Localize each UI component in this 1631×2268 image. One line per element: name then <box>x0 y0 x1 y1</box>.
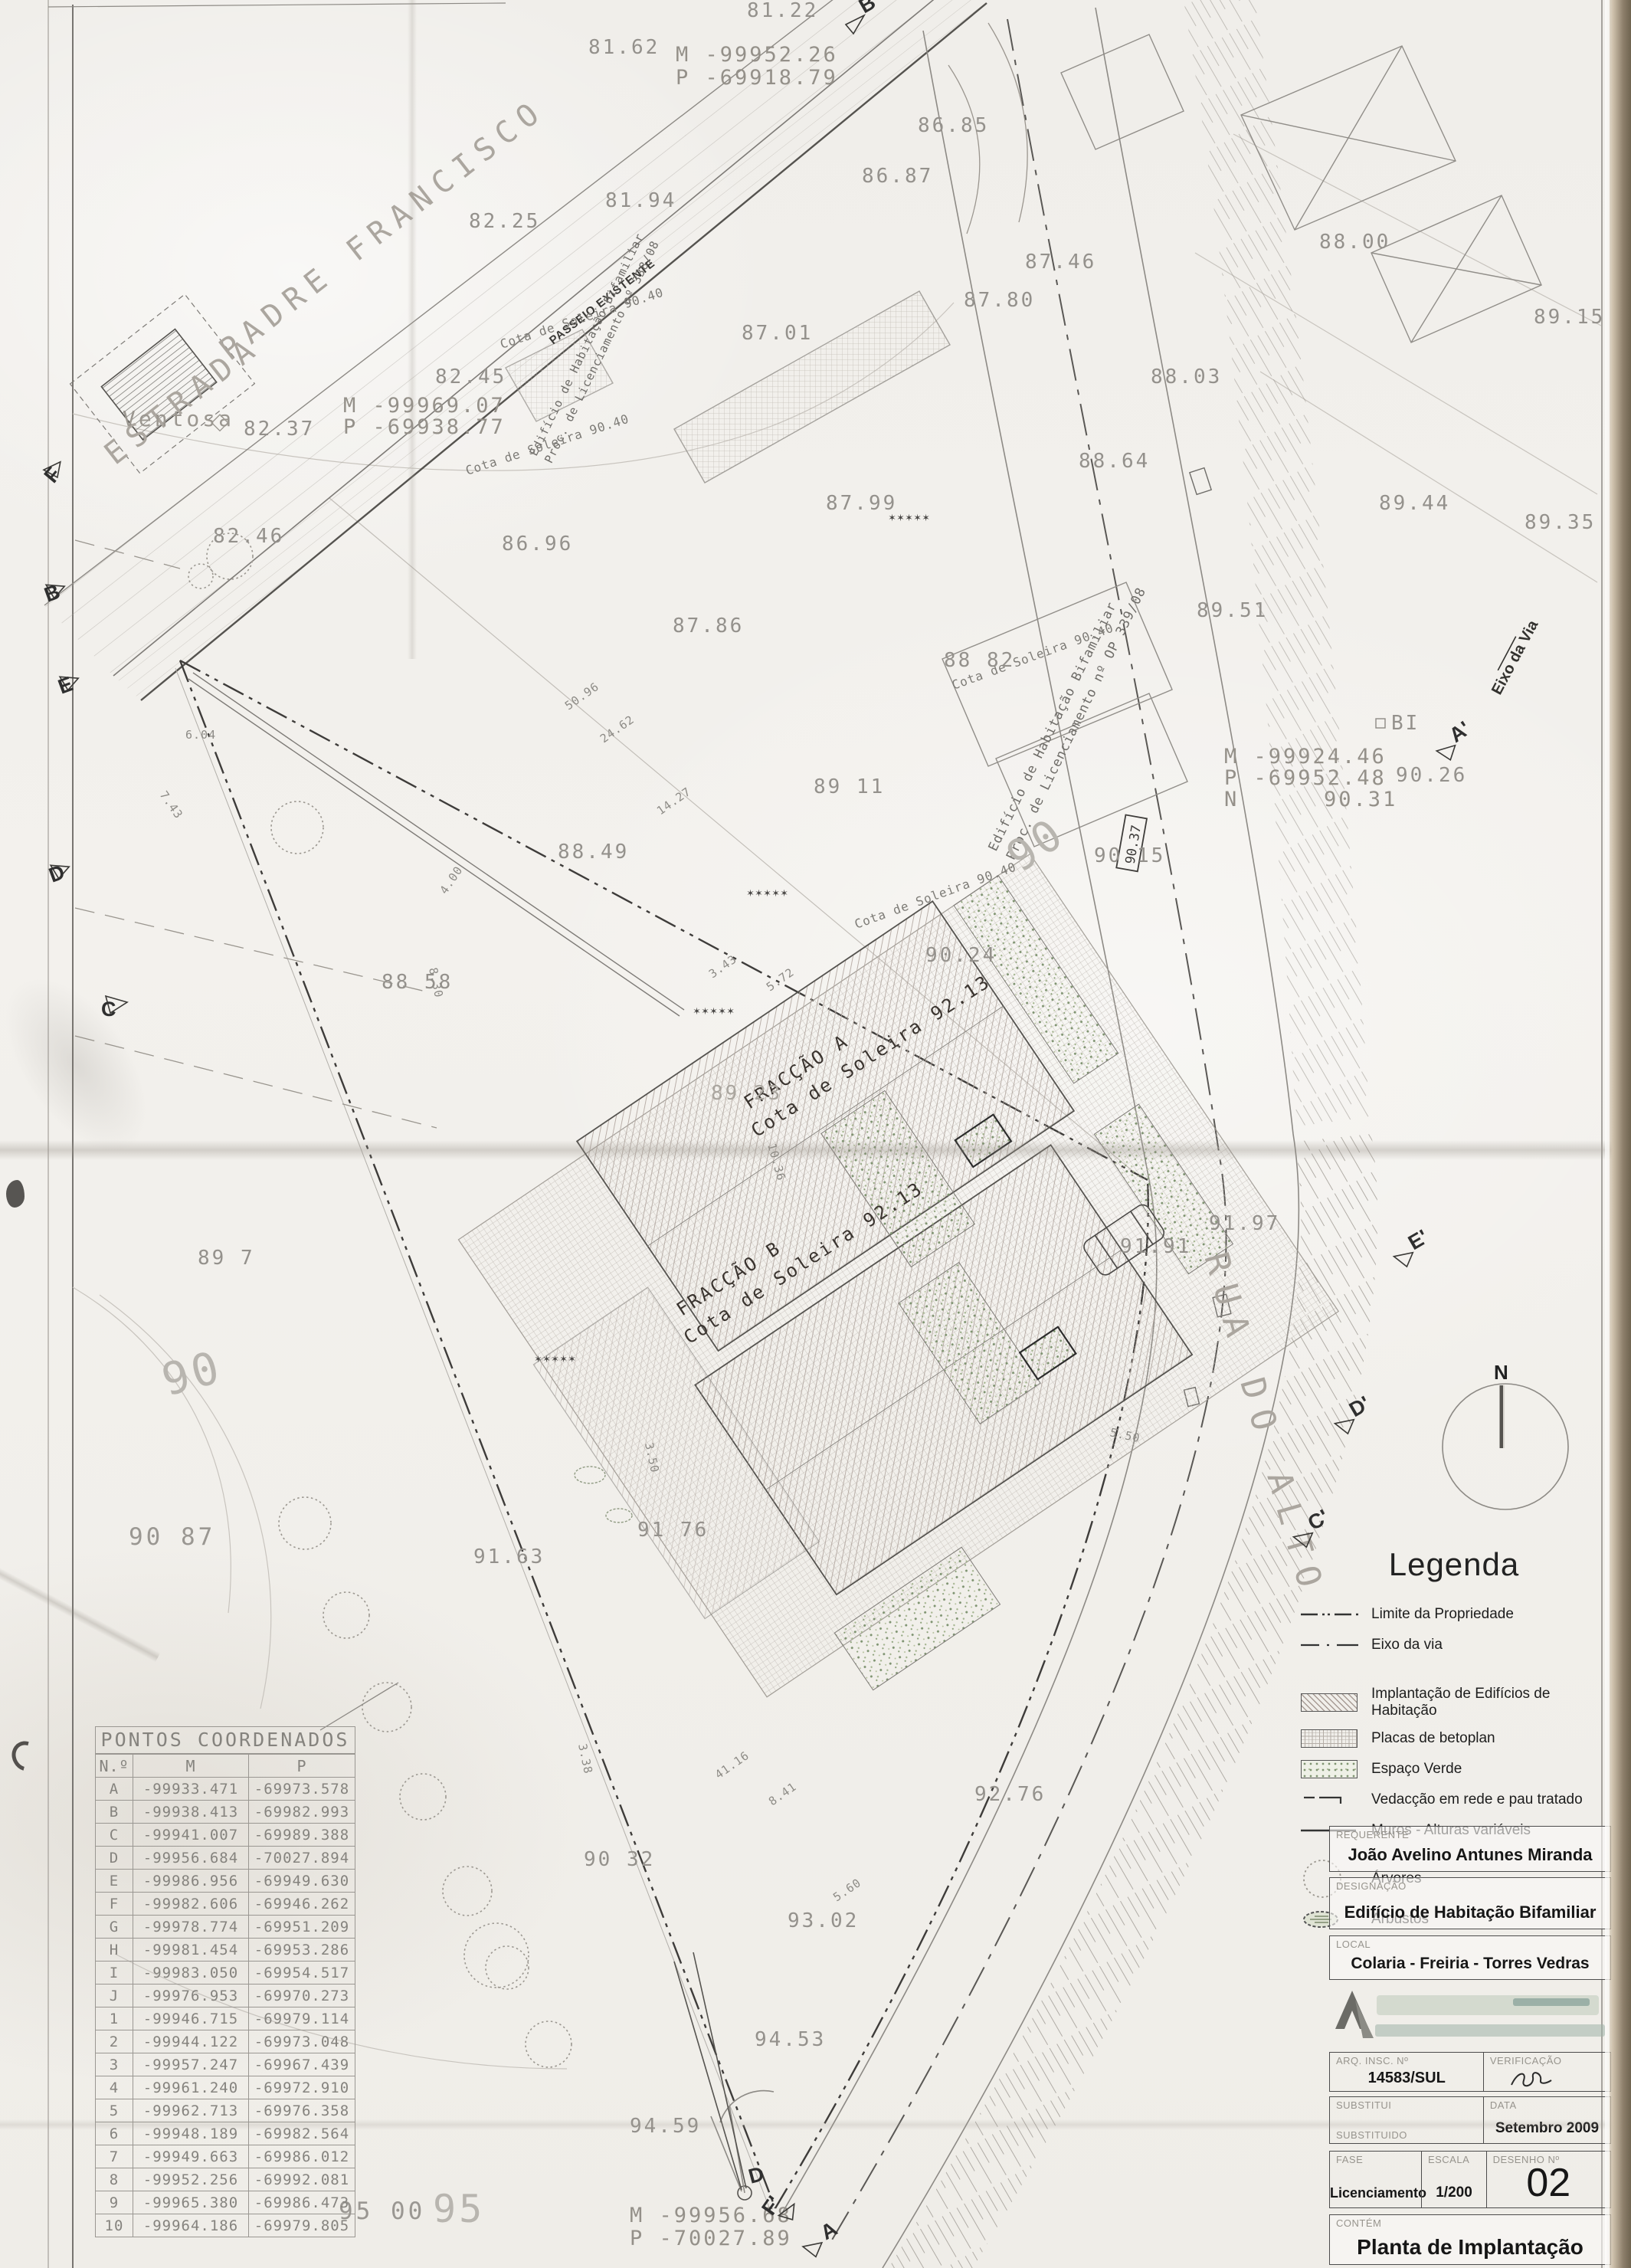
field-verificacao: VERIFICAÇÃO <box>1483 2052 1611 2092</box>
legend-item: Placas de betoplan <box>1301 1727 1607 1750</box>
svg-text:89 11: 89 11 <box>814 775 885 798</box>
point-id: 3 <box>96 2053 133 2076</box>
svg-text:4.00: 4.00 <box>437 864 465 896</box>
title-block: REQUERENTE João Avelino Antunes Miranda … <box>1329 1826 1611 2265</box>
svg-text:91.91: 91.91 <box>1120 1235 1191 1258</box>
svg-text:87.01: 87.01 <box>742 322 813 345</box>
scanned-site-plan-sheet: ✶✶✶✶✶ ✶✶✶✶✶ ✶✶✶✶✶ ✶✶✶✶✶ ESTRADA PADRE FR… <box>0 0 1631 2268</box>
point-p: -69992.081 <box>249 2168 355 2191</box>
point-p: -69949.630 <box>249 1870 355 1893</box>
point-id: C <box>96 1824 133 1847</box>
fold-crease-vertical <box>408 0 417 659</box>
svg-text:D: D <box>46 860 68 887</box>
point-m: -99948.189 <box>133 2122 249 2145</box>
point-m: -99981.454 <box>133 1939 249 1962</box>
svg-text:BI: BI <box>1391 712 1420 735</box>
road-axis-line-symbol <box>1301 1634 1361 1657</box>
svg-text:E': E' <box>1404 1225 1432 1254</box>
point-m: -99978.774 <box>133 1916 249 1939</box>
svg-text:✶✶✶✶✶: ✶✶✶✶✶ <box>747 886 789 900</box>
table-row: 1 -99946.715 -69979.114 <box>96 2007 355 2030</box>
svg-text:B: B <box>41 580 64 607</box>
svg-text:89.35: 89.35 <box>1525 511 1596 534</box>
table-row: B -99938.413 -69982.993 <box>96 1801 355 1824</box>
table-row: 10 -99964.186 -69979.805 <box>96 2214 355 2237</box>
point-m: -99961.240 <box>133 2076 249 2099</box>
point-p: -69954.517 <box>249 1962 355 1984</box>
col-header-p: P <box>249 1755 355 1778</box>
svg-text:✶✶✶✶✶: ✶✶✶✶✶ <box>693 1004 735 1018</box>
point-p: -69979.114 <box>249 2007 355 2030</box>
point-m: -99983.050 <box>133 1962 249 1984</box>
point-id: 4 <box>96 2076 133 2099</box>
svg-text:81.22: 81.22 <box>747 0 818 22</box>
point-id: 10 <box>96 2214 133 2237</box>
svg-text:3.38: 3.38 <box>575 1742 595 1775</box>
place-label-ventosa: Ventosa <box>123 406 234 431</box>
point-p: -69986.012 <box>249 2145 355 2168</box>
field-fase: FASE Licenciamento <box>1329 2151 1422 2208</box>
field-data: DATA Setembro 2009 <box>1483 2096 1611 2144</box>
table-row: 9 -99965.380 -69986.473 <box>96 2191 355 2214</box>
svg-text:86.96: 86.96 <box>502 533 573 556</box>
point-p: -69953.286 <box>249 1939 355 1962</box>
point-id: 9 <box>96 2191 133 2214</box>
svg-text:86.85: 86.85 <box>918 114 989 137</box>
svg-text:81.62: 81.62 <box>588 36 660 59</box>
svg-text:14.27: 14.27 <box>654 785 693 818</box>
svg-text:Eixo da Via: Eixo da Via <box>1489 617 1542 697</box>
point-id: D <box>96 1847 133 1870</box>
point-m: -99949.663 <box>133 2145 249 2168</box>
point-p: -69946.262 <box>249 1893 355 1916</box>
diagonal-hatch-swatch <box>1301 1691 1361 1714</box>
svg-text:92.76: 92.76 <box>974 1783 1046 1806</box>
table-row: A -99933.471 -69973.578 <box>96 1778 355 1801</box>
svg-text:50.96: 50.96 <box>562 680 601 713</box>
svg-text:M -99924.46: M -99924.46 <box>1224 745 1387 769</box>
point-p: -69986.473 <box>249 2191 355 2214</box>
signature-squiggle <box>1507 2068 1561 2091</box>
svg-text:N: N <box>1224 788 1239 811</box>
point-m: -99962.713 <box>133 2099 249 2122</box>
svg-text:8.41: 8.41 <box>766 1780 799 1809</box>
point-m: -99933.471 <box>133 1778 249 1801</box>
point-id: J <box>96 1984 133 2007</box>
svg-text:D: D <box>746 2162 767 2188</box>
svg-text:89 7: 89 7 <box>198 1247 255 1270</box>
point-id: 2 <box>96 2030 133 2053</box>
svg-text:90.24: 90.24 <box>925 944 997 967</box>
svg-text:P -70027.89: P -70027.89 <box>630 2227 792 2250</box>
contour-label-90: 90 <box>156 1341 228 1407</box>
field-requerente: REQUERENTE João Avelino Antunes Miranda <box>1329 1826 1611 1872</box>
svg-text:M -99969.07: M -99969.07 <box>343 394 506 418</box>
svg-text:A: A <box>817 2217 841 2244</box>
point-p: -69979.805 <box>249 2214 355 2237</box>
svg-text:82.45: 82.45 <box>435 365 506 388</box>
svg-text:91.97: 91.97 <box>1209 1212 1280 1235</box>
point-m: -99982.606 <box>133 1893 249 1916</box>
legend-item: Espaço Verde <box>1301 1758 1607 1781</box>
road-axis-label: Eixo da Via <box>1488 617 1542 697</box>
svg-text:90 15: 90 15 <box>1094 844 1165 867</box>
svg-text:87.80: 87.80 <box>964 289 1035 312</box>
svg-text:88.49: 88.49 <box>558 841 629 864</box>
svg-text:P -69952.48: P -69952.48 <box>1224 766 1387 790</box>
table-row: 2 -99944.122 -69973.048 <box>96 2030 355 2053</box>
point-m: -99957.247 <box>133 2053 249 2076</box>
contour-label-95: 95 <box>433 2187 485 2231</box>
point-p: -69989.388 <box>249 1824 355 1847</box>
coordinates-table: PONTOS COORDENADOS N.º M P A -99933.471 … <box>95 1726 355 2237</box>
legend-title: Legenda <box>1301 1546 1607 1583</box>
table-row: 5 -99962.713 -69976.358 <box>96 2099 355 2122</box>
svg-text:41.16: 41.16 <box>712 1749 752 1782</box>
point-id: H <box>96 1939 133 1962</box>
coord-note-west: M -99969.07 P -69938.77 <box>343 394 506 439</box>
svg-text:✶✶✶✶✶: ✶✶✶✶✶ <box>535 1352 577 1365</box>
svg-text:5.60: 5.60 <box>830 1876 863 1904</box>
svg-text:91.63: 91.63 <box>473 1545 545 1568</box>
svg-text:82.37: 82.37 <box>244 418 315 441</box>
svg-text:90 87: 90 87 <box>129 1523 215 1551</box>
svg-text:89 23: 89 23 <box>711 1082 782 1105</box>
table-row: E -99986.956 -69949.630 <box>96 1870 355 1893</box>
svg-text:A': A' <box>1445 716 1474 746</box>
svg-text:P -69918.79: P -69918.79 <box>676 66 838 90</box>
field-arq-insc: ARQ. INSC. Nº 14583/SUL <box>1329 2052 1484 2092</box>
point-id: 6 <box>96 2122 133 2145</box>
field-local: LOCAL Colaria - Freiria - Torres Vedras <box>1329 1935 1611 1980</box>
point-p: -69982.564 <box>249 2122 355 2145</box>
table-row: 6 -99948.189 -69982.564 <box>96 2122 355 2145</box>
table-row: D -99956.684 -70027.894 <box>96 1847 355 1870</box>
field-escala: ESCALA 1/200 <box>1421 2151 1487 2208</box>
point-id: E <box>96 1870 133 1893</box>
svg-text:94.59: 94.59 <box>630 2115 701 2138</box>
point-p: -69972.910 <box>249 2076 355 2099</box>
point-p: -69976.358 <box>249 2099 355 2122</box>
property-line-symbol <box>1301 1603 1361 1626</box>
point-m: -99952.256 <box>133 2168 249 2191</box>
grid-hatch-swatch <box>1301 1727 1361 1750</box>
svg-text:87.46: 87.46 <box>1025 251 1096 274</box>
green-stipple-swatch <box>1301 1758 1361 1781</box>
point-m: -99965.380 <box>133 2191 249 2214</box>
point-p: -69982.993 <box>249 1801 355 1824</box>
ink-stain <box>6 1180 25 1208</box>
point-id: B <box>96 1801 133 1824</box>
table-row: F -99982.606 -69946.262 <box>96 1893 355 1916</box>
table-row: G -99978.774 -69951.209 <box>96 1916 355 1939</box>
point-p: -69970.273 <box>249 1984 355 2007</box>
svg-text:87.86: 87.86 <box>673 615 744 637</box>
svg-text:88.03: 88.03 <box>1151 365 1222 388</box>
table-row: I -99983.050 -69954.517 <box>96 1962 355 1984</box>
field-designacao: DESIGNAÇÃO Edifício de Habitação Bifamil… <box>1329 1877 1611 1929</box>
point-p: -69973.048 <box>249 2030 355 2053</box>
table-row: 7 -99949.663 -69986.012 <box>96 2145 355 2168</box>
svg-text:88 82: 88 82 <box>944 649 1015 672</box>
coordinates-table-title: PONTOS COORDENADOS <box>95 1726 355 1754</box>
coord-note-top: M -99952.26 P -69918.79 <box>676 43 838 90</box>
svg-text:89.51: 89.51 <box>1197 599 1268 622</box>
point-id: A <box>96 1778 133 1801</box>
svg-text:90.31: 90.31 <box>1324 788 1397 811</box>
col-header-m: M <box>133 1755 249 1778</box>
svg-text:88.64: 88.64 <box>1079 450 1150 473</box>
point-m: -99964.186 <box>133 2214 249 2237</box>
svg-text:M -99952.26: M -99952.26 <box>676 43 838 67</box>
point-id: 7 <box>96 2145 133 2168</box>
col-header-number: N.º <box>96 1755 133 1778</box>
svg-text:7.43: 7.43 <box>157 788 186 821</box>
svg-text:86.87: 86.87 <box>862 165 933 188</box>
point-p: -69951.209 <box>249 1916 355 1939</box>
table-leader-line <box>320 1683 398 1730</box>
legend-item: Implantação de Edifícios de Habitação <box>1301 1686 1607 1719</box>
point-m: -99986.956 <box>133 1870 249 1893</box>
table-row: C -99941.007 -69989.388 <box>96 1824 355 1847</box>
svg-text:89.15: 89.15 <box>1534 306 1605 329</box>
north-label: N <box>1494 1361 1508 1384</box>
point-p: -69973.578 <box>249 1778 355 1801</box>
svg-text:88.00: 88.00 <box>1319 231 1390 254</box>
coordinates-table-body: A -99933.471 -69973.578 B -99938.413 -69… <box>96 1778 355 2237</box>
field-desenho-numero: DESENHO Nº 02 <box>1486 2151 1611 2208</box>
svg-text:82.46: 82.46 <box>213 525 284 548</box>
stamp-logo <box>1329 1984 1611 2044</box>
legend-item: Limite da Propriedade <box>1301 1603 1607 1626</box>
point-id: 8 <box>96 2168 133 2191</box>
point-m: -99976.953 <box>133 1984 249 2007</box>
north-compass: N <box>1443 1361 1568 1509</box>
table-row: H -99981.454 -69953.286 <box>96 1939 355 1962</box>
svg-text:90.26: 90.26 <box>1396 764 1467 787</box>
point-id: I <box>96 1962 133 1984</box>
table-row: J -99976.953 -69970.273 <box>96 1984 355 2007</box>
svg-text:6.04: 6.04 <box>185 728 216 742</box>
svg-text:24.62: 24.62 <box>598 713 637 746</box>
utility-bi-label: BI <box>1376 712 1420 735</box>
field-contem: CONTÉM Planta de Implantação <box>1329 2214 1611 2265</box>
table-row: 8 -99952.256 -69992.081 <box>96 2168 355 2191</box>
point-m: -99946.715 <box>133 2007 249 2030</box>
svg-text:91 76: 91 76 <box>637 1519 709 1542</box>
fence-symbol <box>1301 1788 1361 1811</box>
svg-text:89.44: 89.44 <box>1379 492 1450 515</box>
point-p: -69967.439 <box>249 2053 355 2076</box>
table-row: 4 -99961.240 -69972.910 <box>96 2076 355 2099</box>
table-row: 3 -99957.247 -69967.439 <box>96 2053 355 2076</box>
svg-text:87.99: 87.99 <box>826 492 897 515</box>
coordinates-table-header-row: N.º M P <box>96 1755 355 1778</box>
scan-edge-highlight <box>1605 0 1610 2268</box>
point-m: -99944.122 <box>133 2030 249 2053</box>
point-id: F <box>96 1893 133 1916</box>
point-m: -99941.007 <box>133 1824 249 1847</box>
legend-item: Eixo da via <box>1301 1634 1607 1657</box>
svg-text:93.02: 93.02 <box>788 1909 859 1932</box>
architect-stamp <box>1329 1984 1611 2044</box>
svg-text:81.94: 81.94 <box>605 189 676 212</box>
point-m: -99938.413 <box>133 1801 249 1824</box>
svg-text:3.43: 3.43 <box>706 952 739 982</box>
point-id: G <box>96 1916 133 1939</box>
point-m: -99956.684 <box>133 1847 249 1870</box>
svg-text:P -69938.77: P -69938.77 <box>343 415 506 439</box>
svg-text:94.53: 94.53 <box>755 2028 826 2051</box>
point-id: 1 <box>96 2007 133 2030</box>
point-p: -70027.894 <box>249 1847 355 1870</box>
point-id: 5 <box>96 2099 133 2122</box>
svg-text:82.25: 82.25 <box>469 210 540 233</box>
svg-text:90 32: 90 32 <box>584 1848 655 1871</box>
svg-text:F: F <box>40 463 66 487</box>
field-substitui: SUBSTITUI SUBSTITUIDO <box>1329 2096 1484 2144</box>
legend-item: Vedacção em rede e pau tratado <box>1301 1788 1607 1811</box>
